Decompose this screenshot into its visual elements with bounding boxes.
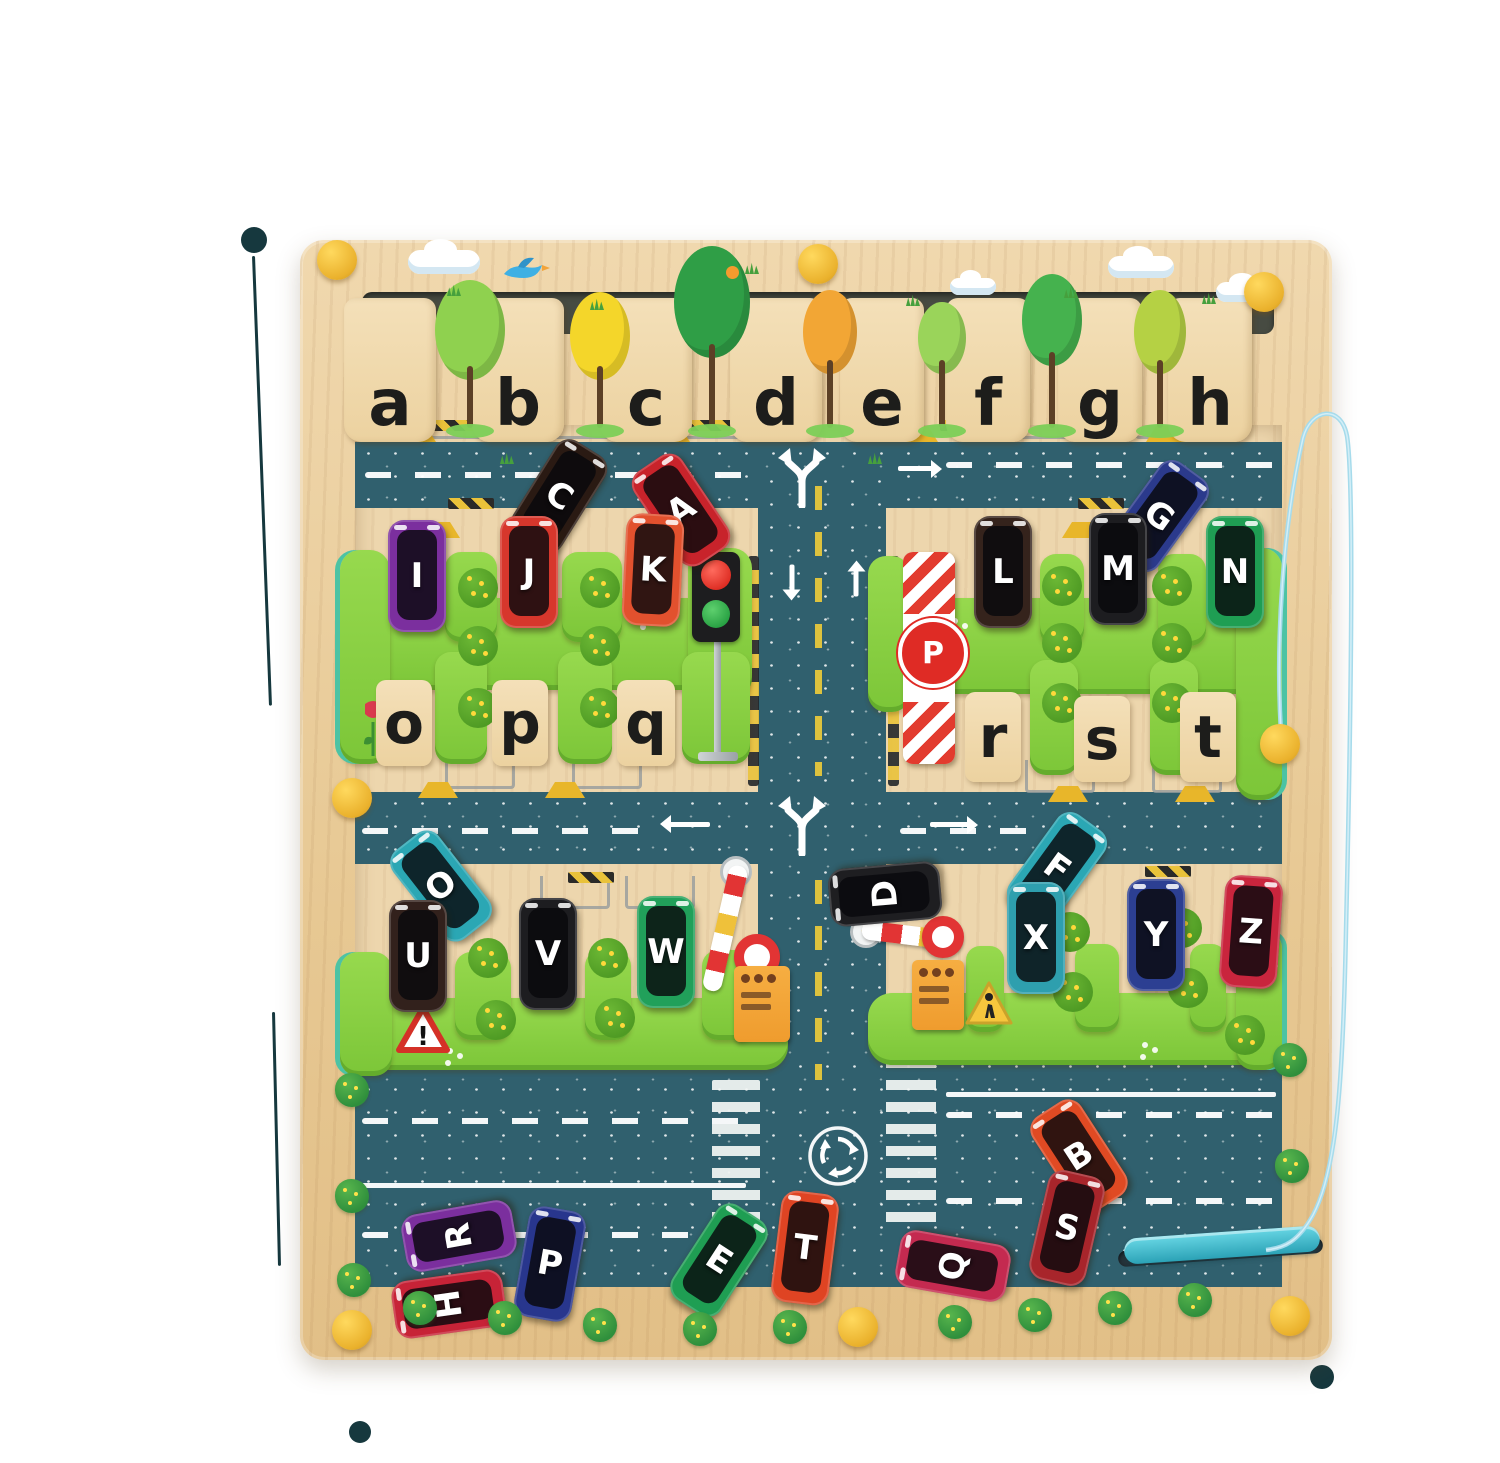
car-letter: N (1221, 552, 1249, 592)
wooden-knob (317, 240, 357, 280)
hedge-bush (588, 938, 628, 978)
barrier-base (734, 966, 790, 1042)
lane-line (362, 1183, 746, 1188)
tree-mound (1136, 424, 1184, 438)
tree-canopy (435, 280, 505, 380)
tab-letter: c (627, 372, 665, 436)
car-letter: L (992, 552, 1014, 592)
tab-letter: g (1077, 372, 1123, 436)
car-letter: U (404, 936, 432, 976)
road-arrow (790, 565, 795, 597)
tree-mound (1028, 424, 1076, 438)
hedge-bush (580, 568, 620, 608)
car-letter: J (523, 552, 536, 592)
barrier-ring (922, 916, 964, 958)
car-letter: M (1101, 549, 1135, 589)
car-W[interactable]: W (637, 896, 695, 1008)
tree-trunk (1049, 352, 1055, 428)
border-bush (1273, 1043, 1307, 1077)
tab-letter: e (860, 372, 903, 436)
traffic-light-pole (714, 630, 721, 756)
tree-trunk (597, 366, 603, 428)
fork-arrow (770, 794, 834, 856)
barrier-base (912, 960, 964, 1030)
tab-letter: a (368, 372, 411, 436)
lane-dashes (946, 462, 1276, 468)
tab-letter: b (495, 372, 541, 436)
car-D[interactable]: D (827, 860, 944, 928)
cloud (950, 278, 996, 295)
cloud (1108, 256, 1174, 278)
car-letter: Y (1144, 915, 1169, 955)
wooden-knob (1244, 272, 1284, 312)
border-bush (1178, 1283, 1212, 1317)
car-M[interactable]: M (1089, 513, 1147, 625)
car-V[interactable]: V (519, 898, 577, 1010)
wooden-knob (332, 778, 372, 818)
hedge-bush (1225, 1015, 1265, 1055)
warning-mark: ! (417, 1022, 429, 1052)
border-bush (773, 1310, 807, 1344)
tab-letter: q (625, 694, 667, 752)
car-letter: Z (1237, 911, 1264, 953)
car-I[interactable]: I (388, 520, 446, 632)
car-U[interactable]: U (389, 900, 447, 1012)
road-arrow (930, 822, 974, 827)
car-letter: K (639, 549, 667, 590)
car-letter: W (647, 932, 685, 972)
hedge-bush (476, 1000, 516, 1040)
bird-on-tree-icon (726, 266, 739, 279)
letter-tab-a: a (344, 298, 436, 442)
wooden-knob (332, 1310, 372, 1350)
photo-mark-dot (241, 227, 267, 253)
hedge-bush (1042, 623, 1082, 663)
tab-letter: o (384, 694, 424, 752)
fork-arrow (770, 446, 834, 508)
traffic-light-green (702, 600, 730, 628)
tree-mound (918, 424, 966, 438)
tree-mound (446, 424, 494, 438)
wooden-knob (798, 244, 838, 284)
border-bush (683, 1312, 717, 1346)
border-bush (1018, 1298, 1052, 1332)
border-bush (488, 1301, 522, 1335)
car-N[interactable]: N (1206, 516, 1264, 628)
letter-tab-o: o (376, 680, 432, 766)
traffic-light-red (701, 560, 731, 590)
hedge-flower (1142, 1042, 1148, 1048)
road-arrow (898, 466, 938, 471)
tree-trunk (939, 360, 945, 428)
photo-mark-dot (349, 1421, 371, 1443)
lane-dashes (362, 1118, 746, 1124)
photo-mark-line (252, 256, 272, 706)
car-letter: D (864, 878, 906, 910)
hedge-bush (580, 688, 620, 728)
car-J[interactable]: J (500, 516, 558, 628)
photo-mark-dot (1310, 1365, 1334, 1389)
border-bush (583, 1308, 617, 1342)
tab-letter: s (1085, 710, 1120, 768)
tree-canopy (674, 246, 750, 358)
construction-stripe (1145, 866, 1191, 877)
hedge-bush (1042, 566, 1082, 606)
cloud (408, 250, 480, 274)
wooden-knob (1270, 1296, 1310, 1336)
traffic-light-base (698, 752, 738, 761)
hedge-maze-piece (340, 952, 392, 1076)
tree-mound (806, 424, 854, 438)
tab-letter: d (753, 372, 799, 436)
hedge-bush (595, 998, 635, 1038)
letter-tab-r: r (965, 692, 1021, 782)
wooden-knob (1260, 724, 1300, 764)
car-L[interactable]: L (974, 516, 1032, 628)
border-bush (403, 1291, 437, 1325)
construction-stripe (568, 872, 614, 883)
tab-letter: t (1194, 708, 1222, 766)
tree-mound (688, 424, 736, 438)
border-bush (938, 1305, 972, 1339)
traffic-light-icon (692, 552, 740, 642)
border-bush (337, 1263, 371, 1297)
road-arrow (854, 565, 859, 597)
border-bush (335, 1179, 369, 1213)
lane-line (946, 1092, 1276, 1097)
tree-mound (576, 424, 624, 438)
road-arrow (664, 822, 710, 827)
photo-mark-line (272, 1012, 281, 1266)
tree-trunk (1157, 360, 1163, 428)
car-letter: X (1023, 918, 1049, 958)
lane-dashes (362, 828, 662, 834)
hedge-bush (580, 626, 620, 666)
road-cone (418, 766, 458, 798)
tab-letter: h (1187, 372, 1233, 436)
letter-tab-s: s (1074, 696, 1130, 782)
tree-trunk (709, 344, 715, 428)
car-K[interactable]: K (621, 513, 685, 628)
car-Y[interactable]: Y (1127, 879, 1185, 991)
car-letter: V (535, 934, 561, 974)
tree-trunk (827, 360, 833, 428)
lane-dashes (946, 1112, 1276, 1118)
toy-board-photo: opqrstabcdefghP!CAGIJKLMNOUVWDFXYZRPHETB… (0, 0, 1500, 1463)
car-X[interactable]: X (1007, 882, 1065, 994)
tab-letter: f (974, 372, 1002, 436)
hedge-bush (458, 626, 498, 666)
road-cone (545, 766, 585, 798)
border-bush (335, 1073, 369, 1107)
center-dashes-yellow (815, 486, 822, 776)
pedestrian-sign (964, 980, 1014, 1026)
letter-tab-q: q (617, 680, 675, 766)
car-Z[interactable]: Z (1218, 874, 1284, 990)
letter-tab-t: t (1180, 692, 1236, 782)
letter-tab-p: p (492, 680, 548, 766)
hedge-bush (468, 938, 508, 978)
tab-letter: r (979, 708, 1008, 766)
hedge-bush (1152, 623, 1192, 663)
tree-trunk (467, 366, 473, 428)
car-letter: T (791, 1227, 819, 1270)
parking-sign-stripes (903, 552, 955, 614)
parking-sign-letter: P (922, 636, 944, 671)
parking-sign-circle: P (898, 618, 968, 688)
hedge-bush (1152, 566, 1192, 606)
border-bush (1275, 1149, 1309, 1183)
parking-sign-stripes (903, 702, 955, 764)
flying-bird-icon (498, 254, 550, 288)
hedge-bush (458, 568, 498, 608)
wooden-knob (838, 1307, 878, 1347)
car-letter: I (411, 556, 424, 596)
tab-letter: p (499, 694, 541, 752)
border-bush (1098, 1291, 1132, 1325)
roundabout-sign (805, 1123, 871, 1189)
